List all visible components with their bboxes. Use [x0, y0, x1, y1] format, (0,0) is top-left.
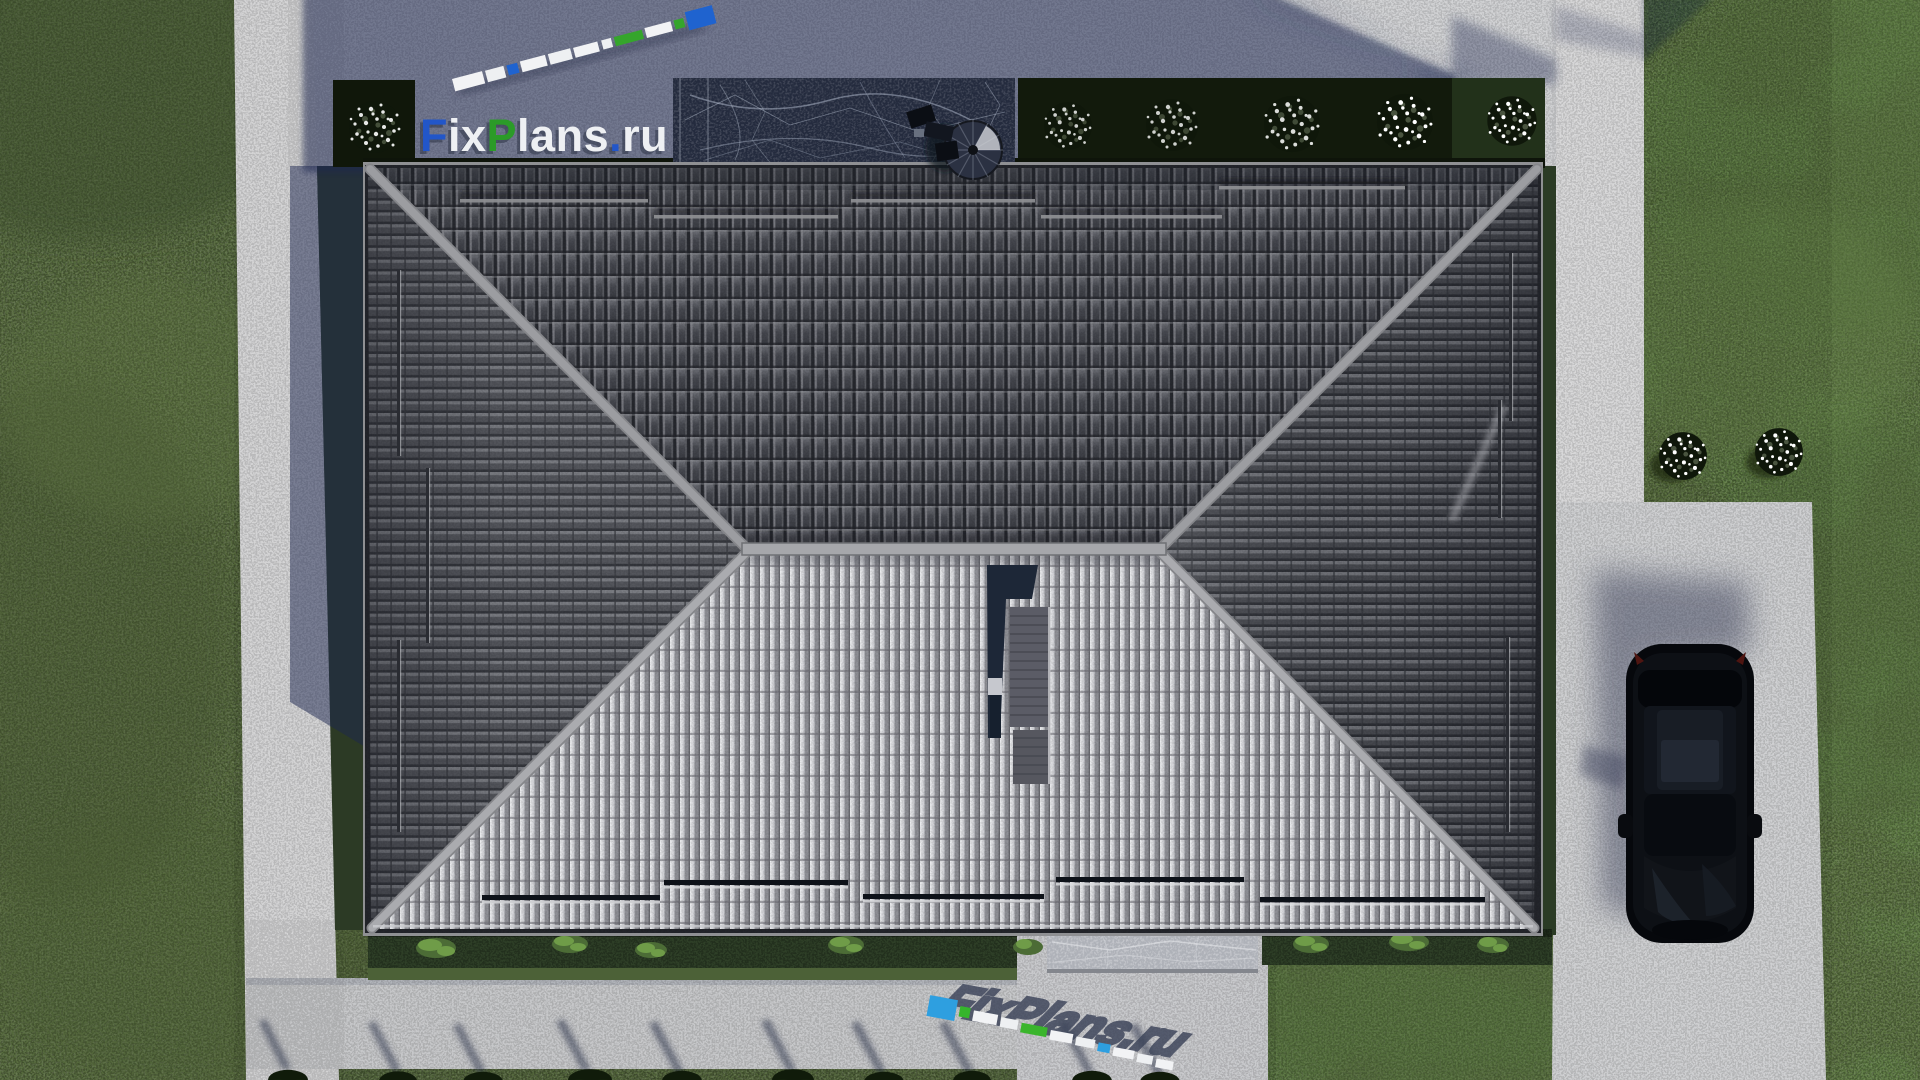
svg-text:FixPlans.ru: FixPlans.ru [420, 110, 668, 161]
